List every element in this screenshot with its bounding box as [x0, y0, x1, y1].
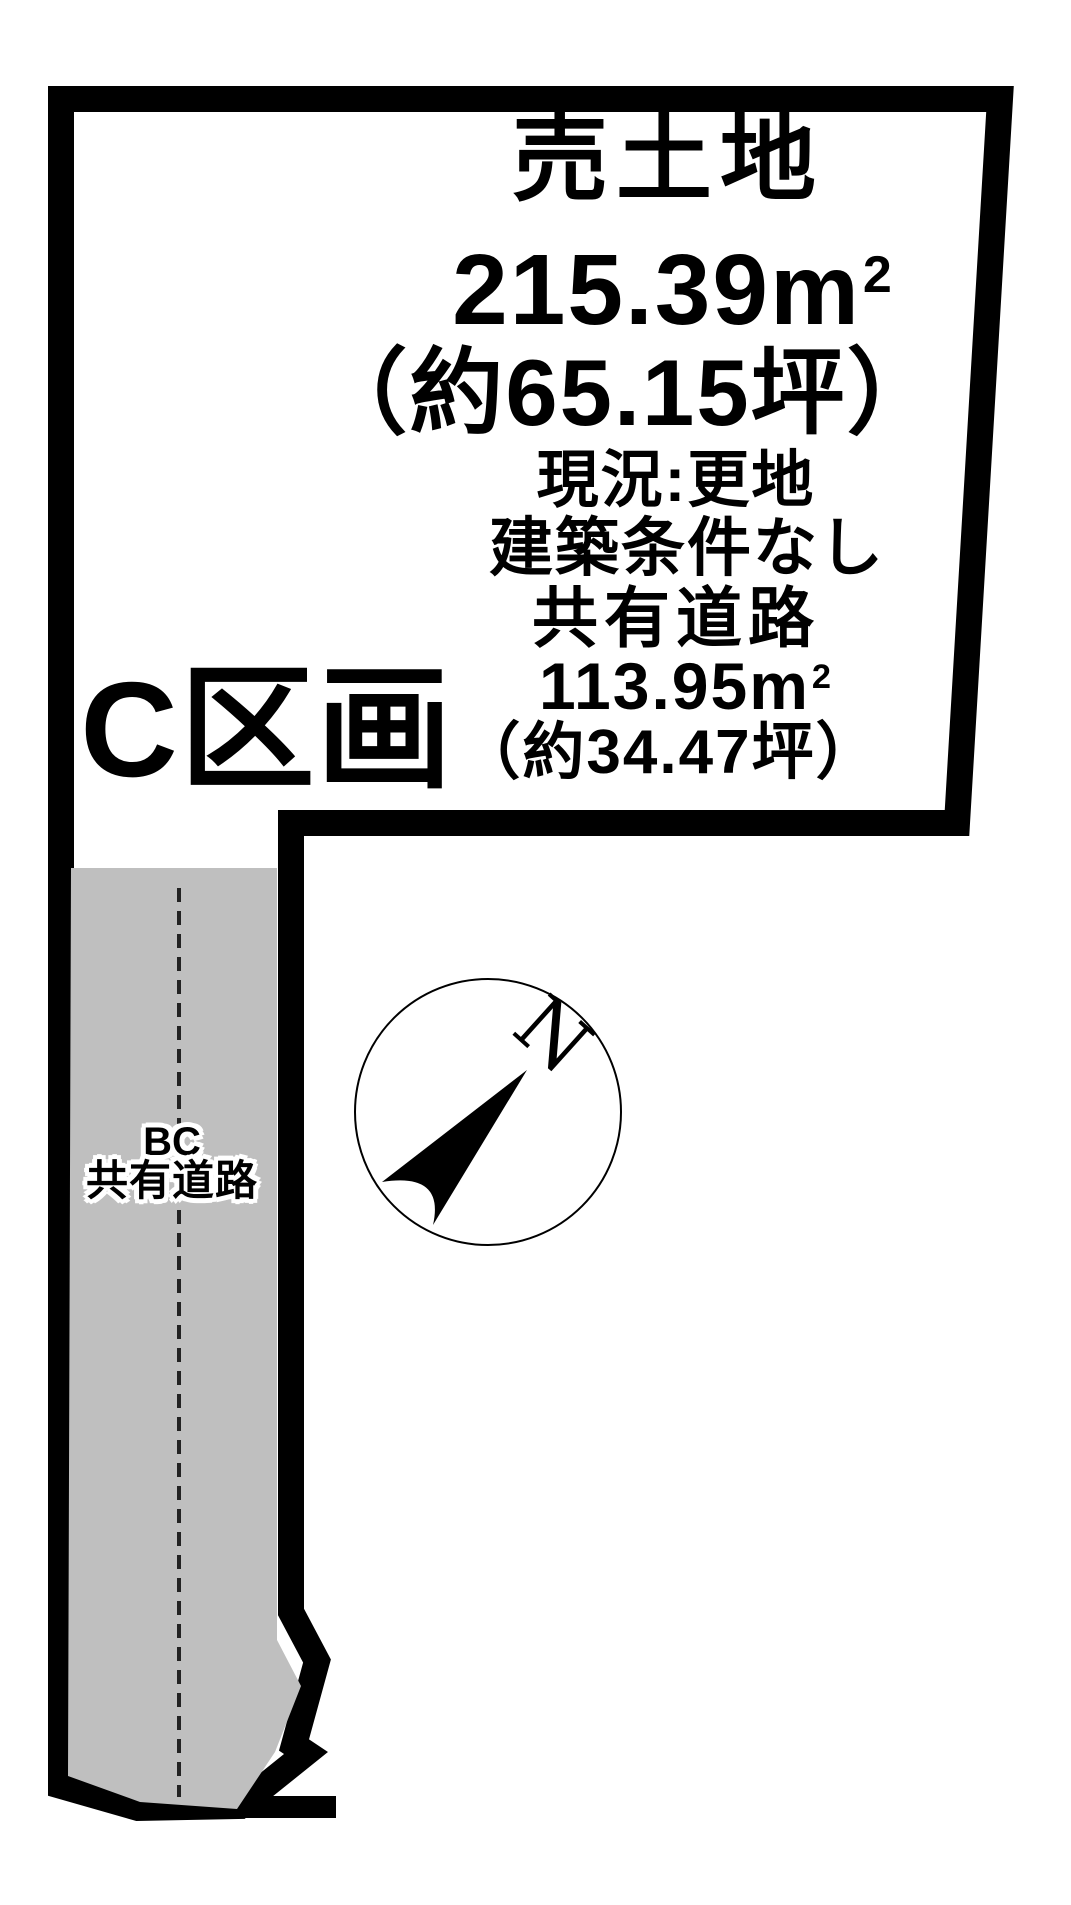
land-area-tsubo: （約65.15坪） [313, 346, 942, 440]
land-area-value: 215.39 [452, 234, 770, 346]
shared-road-area-unit-sup: 2 [812, 658, 831, 696]
land-area-line: 215.39m2 [452, 240, 892, 340]
land-plot-diagram: N 売土地 215.39m2 （約65.15坪） 現況:更地 建築条件なし 共有… [0, 0, 1071, 1905]
shared-road-area-line: 113.95m2 [539, 653, 831, 719]
current-status-label: 現況:更地 [537, 450, 816, 512]
land-area-unit: m [770, 234, 861, 346]
land-type-label: 売土地 [512, 112, 824, 208]
land-area-unit-sup: 2 [863, 246, 892, 304]
shared-road-area-value: 113.95 [539, 649, 749, 723]
road-strip-label-bc: BC [143, 1122, 201, 1162]
shared-road-area-unit: m [749, 649, 810, 723]
section-label: C区画 [80, 662, 454, 797]
shared-road-heading: 共有道路 [532, 585, 820, 651]
shared-road-surface [68, 868, 301, 1809]
building-condition-label: 建築条件なし [489, 516, 885, 580]
road-strip-label-shared-road: 共有道路 [86, 1160, 258, 1202]
shared-road-area-tsubo: （約34.47坪） [458, 722, 879, 784]
